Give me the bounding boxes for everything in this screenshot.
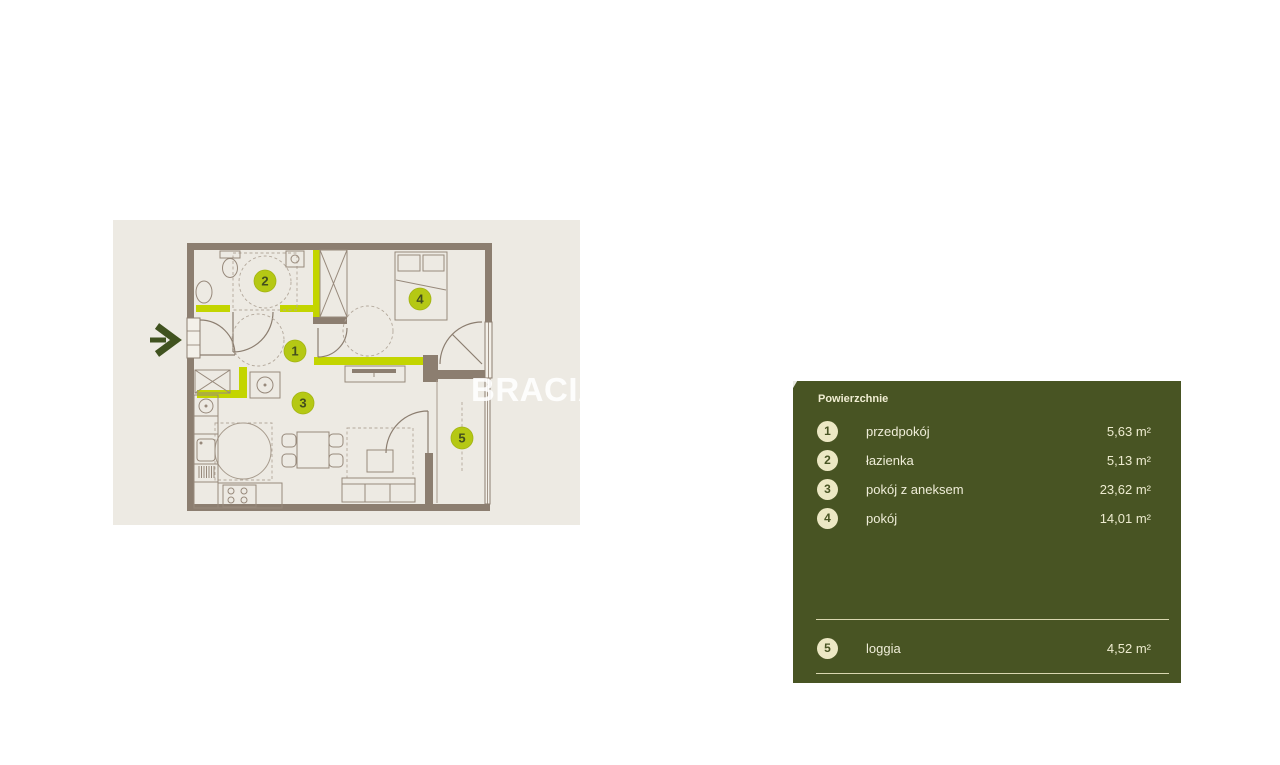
coffee-table-icon [367, 450, 393, 472]
sofa-icon [342, 478, 415, 502]
legend-row-label: loggia [866, 641, 901, 656]
legend-row-value: 5,63 m² [1107, 424, 1151, 439]
entry-arrow-icon [150, 326, 176, 354]
legend-panel: Powierzchnie 1 przedpokój 5,63 m² 2 łazi… [793, 381, 1181, 683]
wardrobe-icon [195, 370, 230, 393]
plan-furniture [194, 250, 447, 508]
watermark-text: BRACIA SADURSCY [471, 371, 800, 409]
closet-icon [320, 250, 347, 317]
legend-row-label: pokój [866, 511, 897, 526]
legend-row: 2 łazienka 5,13 m² [793, 446, 1181, 475]
legend-row-number: 2 [817, 450, 838, 471]
legend-divider [816, 673, 1169, 674]
legend-row-value: 4,52 m² [1107, 641, 1151, 656]
toilet-icon [220, 251, 240, 258]
legend-row-value: 5,13 m² [1107, 453, 1151, 468]
stove-icon [223, 485, 256, 507]
legend-row-value: 23,62 m² [1100, 482, 1151, 497]
legend-row-label: przedpokój [866, 424, 930, 439]
legend-row: 3 pokój z aneksem 23,62 m² [793, 475, 1181, 504]
kitchen-counter-icon [194, 395, 282, 508]
legend-row-number: 5 [817, 638, 838, 659]
legend-row-value: 14,01 m² [1100, 511, 1151, 526]
legend-divider [816, 619, 1169, 620]
room-marker-3-label: 3 [299, 396, 306, 411]
legend-row: 5 loggia 4,52 m² [793, 634, 1181, 663]
room-marker-1-label: 1 [291, 344, 298, 359]
legend-row-label: łazienka [866, 453, 914, 468]
dining-table-icon [282, 432, 343, 468]
washing-machine-icon [250, 372, 280, 398]
room-marker-5-label: 5 [458, 431, 465, 446]
legend-row-label: pokój z aneksem [866, 482, 964, 497]
legend-row: 4 pokój 14,01 m² [793, 504, 1181, 533]
radiator-icon [199, 466, 214, 478]
legend-row-number: 4 [817, 508, 838, 529]
room-marker-2-label: 2 [261, 274, 268, 289]
washbasin-icon [196, 281, 212, 303]
room-marker-4-label: 4 [416, 292, 424, 307]
legend-row-number: 1 [817, 421, 838, 442]
tv-icon [345, 366, 405, 382]
legend-title: Powierzchnie [818, 393, 888, 405]
legend-row-number: 3 [817, 479, 838, 500]
legend-row: 1 przedpokój 5,63 m² [793, 417, 1181, 446]
